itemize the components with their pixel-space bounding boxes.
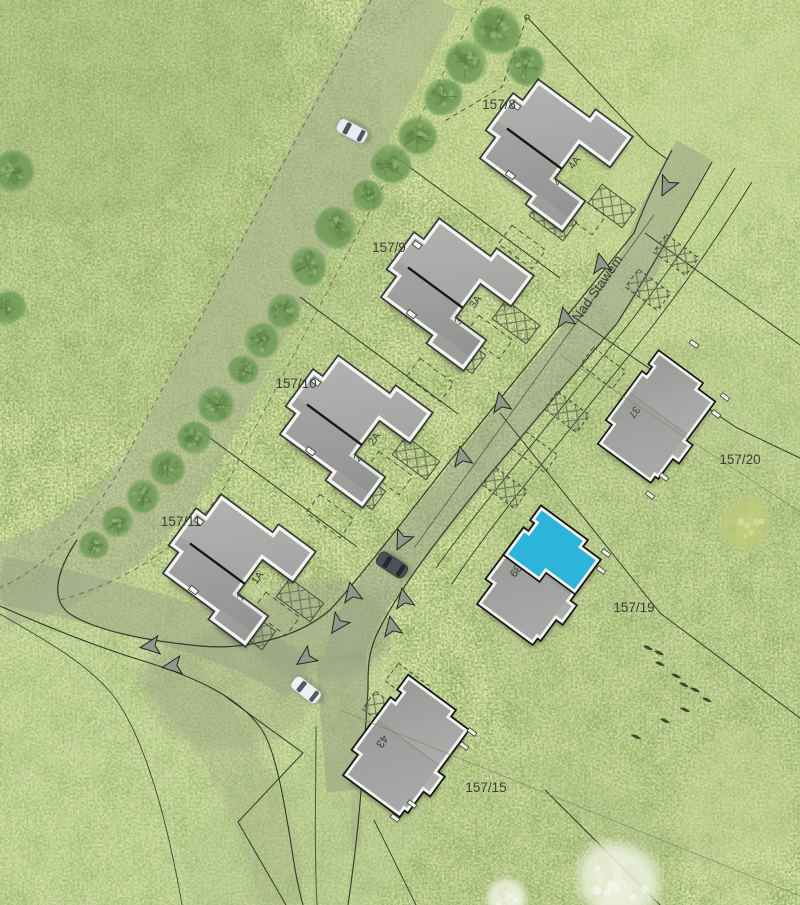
- svg-text:157/9: 157/9: [372, 240, 406, 255]
- svg-text:157/15: 157/15: [465, 780, 506, 795]
- svg-text:157/20: 157/20: [719, 452, 760, 467]
- svg-text:157/19: 157/19: [613, 600, 654, 615]
- svg-text:157/11: 157/11: [161, 514, 201, 529]
- svg-text:157/10: 157/10: [275, 376, 316, 391]
- svg-text:157/8: 157/8: [482, 97, 516, 112]
